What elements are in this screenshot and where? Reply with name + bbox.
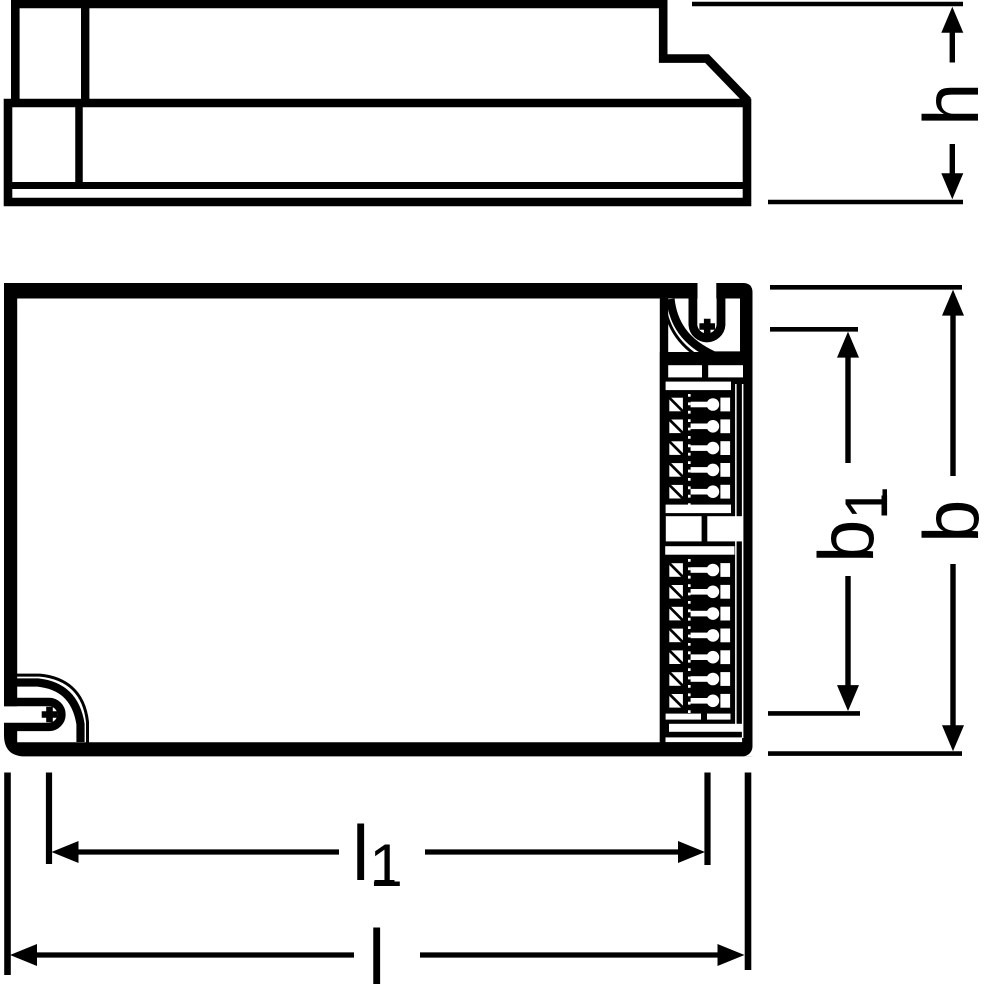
svg-text:l: l bbox=[368, 913, 385, 1000]
svg-text:h: h bbox=[907, 83, 995, 126]
svg-text:b: b bbox=[907, 500, 995, 543]
